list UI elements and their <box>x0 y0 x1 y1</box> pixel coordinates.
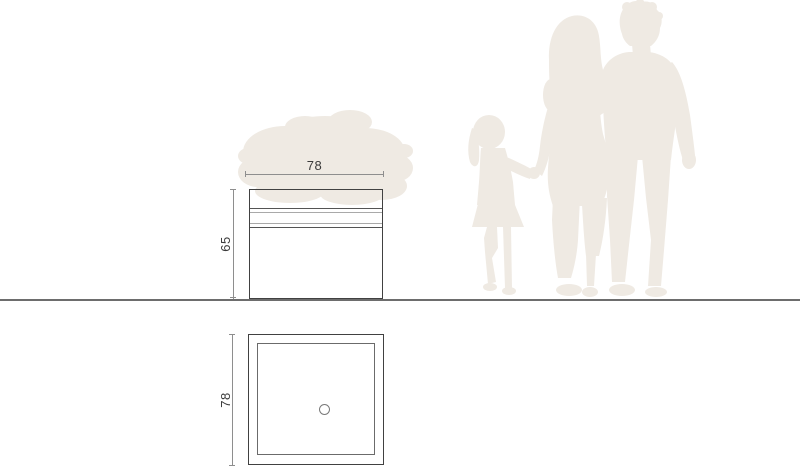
plan-inner-rim <box>257 343 375 455</box>
rim-line <box>250 223 382 224</box>
rim-line <box>250 227 382 228</box>
drain-hole-icon <box>319 404 330 415</box>
plan-view <box>248 334 384 465</box>
dimension-tick <box>229 334 235 335</box>
dimension-tick <box>229 465 235 466</box>
front-height-dimension-line <box>233 189 234 299</box>
front-height-dimension-label: 65 <box>219 236 233 251</box>
man-silhouette <box>603 0 696 297</box>
child-silhouette <box>468 115 540 295</box>
plan-width-dimension-label: 78 <box>219 392 233 407</box>
ground-line <box>0 299 800 301</box>
dimension-tick <box>230 189 236 190</box>
rim-line <box>250 208 382 209</box>
woman-silhouette <box>534 15 610 297</box>
scale-silhouette-layer <box>0 0 800 469</box>
family-silhouette <box>468 0 696 297</box>
front-width-dimension-label: 78 <box>245 159 384 173</box>
rim-line <box>250 212 382 213</box>
dimension-drawing-page: 78 65 78 <box>0 0 800 469</box>
dimension-tick <box>230 297 236 298</box>
front-width-dimension-line <box>245 174 384 175</box>
front-elevation-view <box>249 189 383 299</box>
